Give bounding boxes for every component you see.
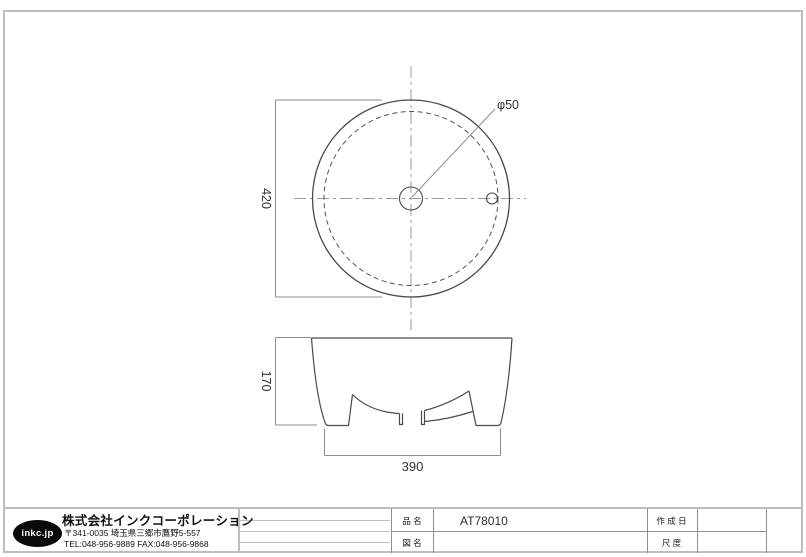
side-view-left-tab xyxy=(400,414,403,425)
dimension-170-text: 170 xyxy=(259,371,273,392)
note-row-line-1 xyxy=(240,520,390,521)
note-row-line-3 xyxy=(240,542,390,543)
drawing-sheet: 420 φ50 xyxy=(0,0,806,557)
side-view-right-foot-inner-edge xyxy=(469,391,476,426)
side-view xyxy=(312,338,513,426)
drawing-name-label: 図 名 xyxy=(391,537,433,549)
company-address: 〒341-0035 埼玉県三郷市鷹野5-557 xyxy=(64,527,201,539)
product-name-label: 品 名 xyxy=(391,515,433,527)
company-tel-fax: TEL:048-956-9889 FAX:048-956-9868 xyxy=(64,539,209,549)
dimension-170-lines xyxy=(276,338,318,426)
side-view-right-bowl-curve-upper xyxy=(425,391,470,411)
company-logo-text: inkc.jp xyxy=(21,528,53,539)
created-date-label: 作 成 日 xyxy=(647,515,696,527)
side-view-left-outline xyxy=(312,338,353,426)
dimension-390-lines xyxy=(325,429,501,456)
faucet-hole-label: φ50 xyxy=(497,98,519,112)
product-name-value: AT78010 xyxy=(460,514,508,528)
side-view-left-bowl-curve xyxy=(353,395,400,414)
side-view-right-outline xyxy=(476,338,512,426)
top-view: 420 φ50 xyxy=(259,66,526,330)
divider-right-end-cell xyxy=(766,509,767,553)
company-logo: inkc.jp xyxy=(13,520,62,547)
side-view-right-bowl-curve-lower xyxy=(425,412,473,422)
technical-drawing: 420 φ50 xyxy=(0,0,806,509)
dimension-170: 170 xyxy=(259,338,317,426)
title-block-row-divider xyxy=(391,531,766,532)
scale-label: 尺 度 xyxy=(647,537,696,549)
title-block-top-rule xyxy=(3,507,803,509)
side-view-right-tab xyxy=(422,411,425,425)
dimension-420-text: 420 xyxy=(259,188,273,209)
note-row-line-2 xyxy=(240,531,390,532)
dimension-390: 390 xyxy=(325,429,501,475)
dimension-390-text: 390 xyxy=(402,459,424,474)
